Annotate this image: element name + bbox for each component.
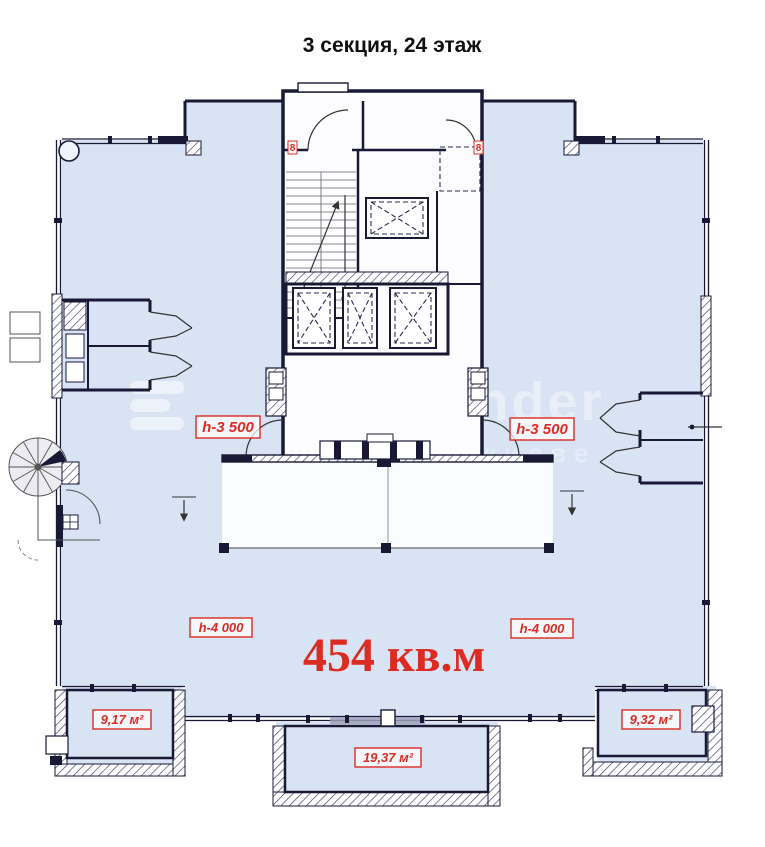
ceiling-height-text: h-4 000 — [199, 620, 245, 635]
balcony-area-text: 19,37 м² — [363, 750, 414, 765]
ceiling-height-label-lower-right: h-4 000 — [511, 619, 573, 638]
stair-elevator-core — [246, 83, 519, 462]
wall-marker-text: 8 — [476, 143, 482, 154]
wall-marker-left: 8 — [288, 141, 297, 154]
ceiling-height-text: h-3 500 — [516, 421, 568, 438]
page-title: 3 секция, 24 этаж — [303, 34, 483, 57]
corner-column — [59, 141, 79, 161]
balcony-area-label-center: 19,37 м² — [355, 748, 421, 767]
floor-plan-drawing: nder в киеве — [0, 0, 765, 847]
elevator-shaft — [390, 288, 436, 348]
ceiling-height-label-lower-left: h-4 000 — [190, 618, 252, 637]
elevator-shaft — [293, 288, 335, 348]
elevator-shaft — [343, 288, 377, 348]
elevator-bank — [286, 272, 448, 354]
floor-plan-page: nder в киеве — [0, 0, 765, 847]
balcony-area-text: 9,17 м² — [101, 712, 145, 727]
balcony-area-label-left: 9,17 м² — [93, 710, 151, 729]
vent-shaft — [366, 198, 428, 238]
total-area-label: 454 кв.м — [303, 629, 485, 682]
ceiling-height-label-upper-left: h-3 500 — [196, 416, 260, 438]
wall-marker-right: 8 — [474, 141, 483, 154]
wall-marker-text: 8 — [290, 143, 296, 154]
ceiling-height-label-upper-right: h-3 500 — [510, 418, 574, 440]
balcony-area-label-right: 9,32 м² — [622, 710, 680, 729]
balcony-area-text: 9,32 м² — [630, 712, 674, 727]
ceiling-height-text: h-4 000 — [520, 621, 566, 636]
ceiling-height-text: h-3 500 — [202, 419, 254, 436]
